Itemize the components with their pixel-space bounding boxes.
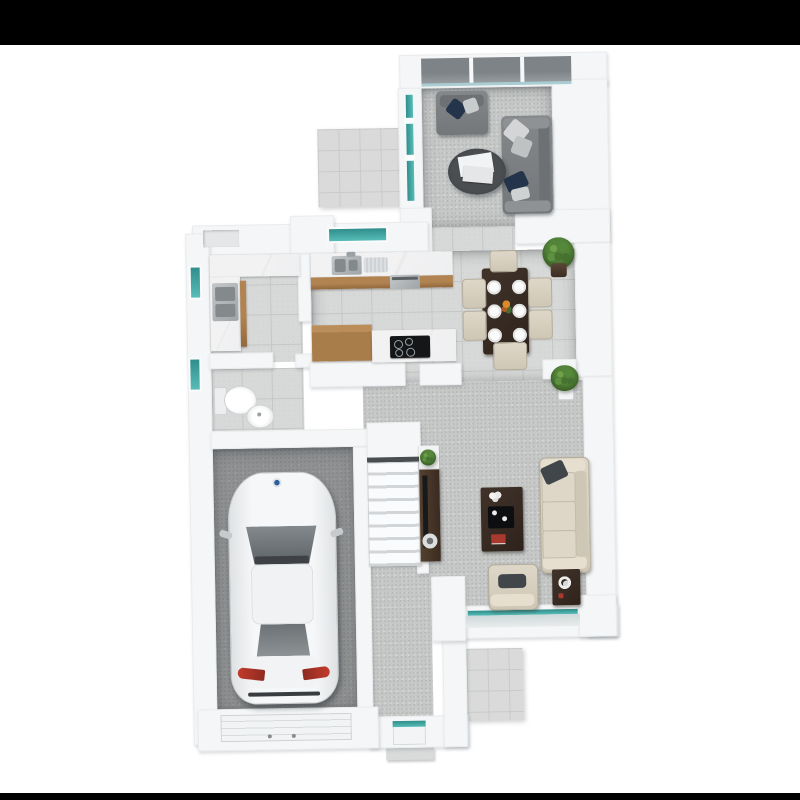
coffee-table-tray <box>488 506 514 528</box>
oven-handle <box>392 277 418 280</box>
living-sofa-back <box>538 121 550 207</box>
family-armchair-cushion <box>498 574 526 588</box>
hob-ring-2 <box>405 338 413 346</box>
stair-landing <box>366 422 421 459</box>
family-corner-block <box>578 594 617 637</box>
dining-chair-right-1 <box>528 277 553 307</box>
dining-chair-left-2 <box>462 310 487 340</box>
coffee-table-book <box>491 534 505 543</box>
family-sofa-cushion-3 <box>542 530 576 559</box>
table-centrepiece <box>501 300 511 316</box>
kitchen-faucet <box>346 252 355 257</box>
kitchen-sink-basin-1 <box>335 259 346 272</box>
staircase <box>367 462 421 567</box>
tray-cup-2 <box>502 516 507 521</box>
floor-plan <box>0 0 800 800</box>
hob-ring-4 <box>406 348 415 357</box>
kitchen-base-cabinets <box>311 275 453 289</box>
utility-sink-basin-1 <box>215 287 235 301</box>
hob-ring-3 <box>395 349 403 357</box>
dining-chair-top <box>489 250 517 272</box>
kitchen-sink-basin-2 <box>349 260 358 271</box>
chimney-stub <box>290 215 335 254</box>
utility-counter-top <box>209 254 299 278</box>
dining-chair-bottom <box>493 342 527 371</box>
utility-sink-basin-2 <box>215 304 235 317</box>
family-window-sill <box>466 614 580 628</box>
side-table-trinket <box>558 593 563 598</box>
garage-door <box>220 713 351 742</box>
dining-chair-right-2 <box>528 309 553 339</box>
front-door-glazing <box>393 721 426 728</box>
garage-door-handle-1 <box>268 734 272 738</box>
utility-side-window <box>191 267 201 297</box>
tray-cup-1 <box>492 510 497 515</box>
utility-cabinet-edge <box>240 281 247 347</box>
coffee-table-books-2 <box>462 165 493 184</box>
car <box>227 471 337 703</box>
dining-right-wall <box>574 242 612 377</box>
glazing-connector-1 <box>404 118 414 124</box>
wc-side-window <box>190 359 200 389</box>
dining-chair-left-1 <box>462 278 487 308</box>
glazing-connector-2 <box>405 155 415 161</box>
garage-door-handle-2 <box>292 734 296 738</box>
front-door-step <box>386 747 434 760</box>
living-sofa-arm-bottom <box>505 200 551 212</box>
utility-window-recess <box>203 230 239 248</box>
family-sofa-cushion-2 <box>542 501 577 532</box>
kitchen-hall-wall <box>309 360 405 388</box>
wc-basin-tap <box>257 412 261 416</box>
rear-patio-floor <box>317 128 402 207</box>
kitchen-window-glass <box>329 228 386 241</box>
car-rear-window <box>254 624 313 657</box>
wc-garage-wall <box>211 429 369 450</box>
hall-family-corner-wall <box>431 576 466 642</box>
car-roof <box>251 564 314 625</box>
coffee-table-flowers <box>489 491 502 502</box>
utility-wc-wall <box>209 352 273 369</box>
front-patio-floor <box>466 648 523 721</box>
kitchen-island <box>312 324 373 361</box>
side-table-ornament <box>556 575 573 590</box>
living-dining-threshold <box>422 226 515 252</box>
family-armchair-back <box>490 594 534 607</box>
hallway-floor <box>367 606 434 718</box>
hall-patio-wall <box>442 639 468 747</box>
dining-plant-top-pot <box>551 263 567 277</box>
hall-door-stub-wall <box>419 363 461 386</box>
kitchen-drainer <box>364 257 388 272</box>
bifold-mullion-2 <box>520 57 524 84</box>
floor-plan-screenshot <box>0 0 800 800</box>
bifold-mullion-1 <box>469 58 473 85</box>
